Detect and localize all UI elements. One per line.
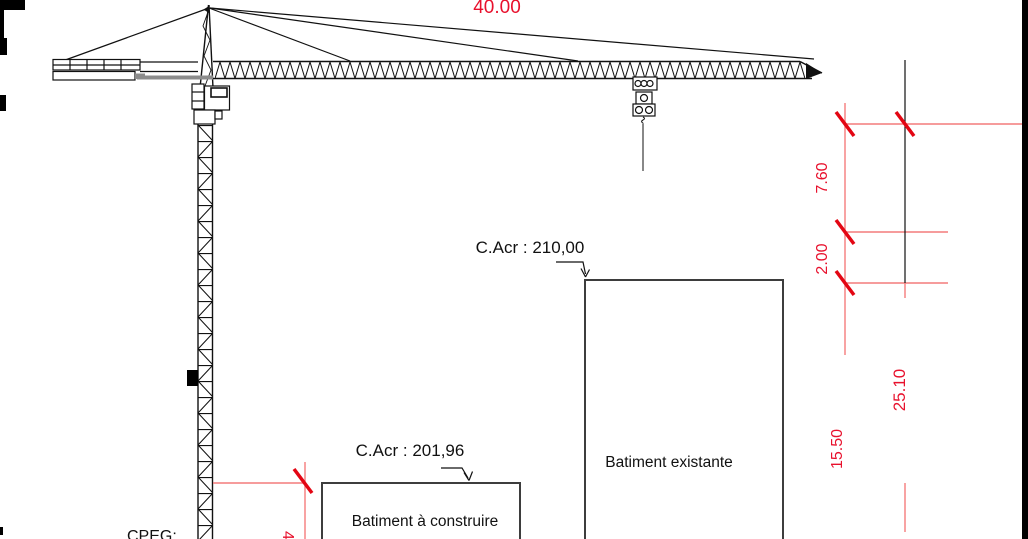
cpeg-label: CPEG:: [127, 528, 177, 539]
building-new-outline: [322, 483, 520, 539]
apex-flag: [204, 6, 210, 13]
crane-cab: [192, 84, 230, 124]
building-existing-outline: [585, 280, 783, 539]
dim-left-partial: 4.43: [279, 531, 296, 539]
crane-tie-lines: [57, 8, 814, 63]
dim-15-50: 15.50: [829, 429, 846, 469]
machinery-deck: [137, 76, 213, 80]
dim-jib-length: 40.00: [473, 0, 521, 18]
dim-2-00: 2.00: [814, 243, 831, 274]
acr-new-leader: [441, 468, 473, 481]
mast-climbing-unit: [187, 370, 198, 386]
acr-new-label: C.Acr : 201,96: [356, 441, 465, 460]
trolley-hook: [633, 77, 657, 171]
building-existing-label: Batiment existante: [605, 454, 733, 471]
edge-artifact-left-bar: [0, 0, 4, 43]
dim-7-60: 7.60: [814, 162, 831, 193]
building-new-label: Batiment à construire: [352, 513, 498, 530]
crane-mast: [187, 124, 213, 539]
drawing-svg: Batiment à construire Batiment existante…: [0, 0, 1028, 539]
edge-artifact-right-bar: [1022, 0, 1028, 539]
edge-artifact-left-2: [0, 95, 6, 111]
edge-artifact-left-1: [0, 38, 7, 55]
crane-elevation-drawing: Batiment à construire Batiment existante…: [0, 0, 1028, 539]
screen-edge-artifacts: [0, 0, 1028, 539]
counter-jib: [53, 60, 213, 81]
dim-25-10: 25.10: [890, 369, 909, 412]
cab-window: [211, 88, 227, 97]
acr-existing-label: C.Acr : 210,00: [476, 238, 585, 257]
buildings: Batiment à construire Batiment existante: [322, 280, 783, 539]
acr-existing-leader: [556, 262, 590, 277]
edge-artifact-bottom-left: [0, 527, 3, 535]
crane-jib: [213, 62, 822, 80]
